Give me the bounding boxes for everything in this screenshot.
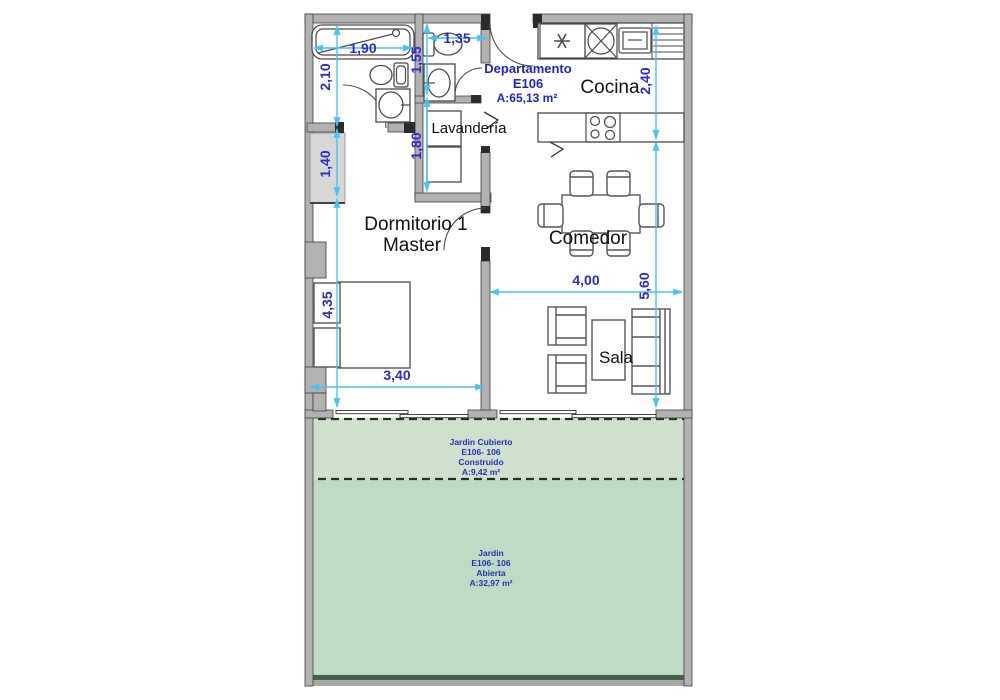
dryer <box>427 147 461 182</box>
unit-name-line1: Departamento <box>484 61 571 76</box>
left-wall-jog-3 <box>313 393 326 411</box>
dim-bath2-height: 1,55 <box>408 46 424 73</box>
sink1-basin <box>379 92 403 118</box>
bedroom-door-leaf <box>481 247 490 261</box>
nightstand-2 <box>314 328 340 367</box>
laundry-door-jamb-bottom <box>481 206 490 213</box>
covered-garden-line1: Jardin Cubierto <box>450 437 513 447</box>
dim-bedroom-width: 3,40 <box>383 367 410 383</box>
open-garden-line3: Abierta <box>476 568 506 578</box>
label-bedroom-line2: Master <box>383 235 442 256</box>
covered-garden-line3: Construido <box>458 457 503 467</box>
laundry-door-jamb-top <box>481 146 490 153</box>
window-sill-3 <box>500 411 576 414</box>
garden-bottom-border <box>305 675 692 680</box>
left-wall <box>305 14 313 686</box>
armchair-2 <box>548 355 586 393</box>
dim-bath1-height: 2,10 <box>317 63 333 90</box>
dining-chair-6 <box>639 204 664 227</box>
window-sill-2 <box>400 415 468 418</box>
label-bedroom-line1: Dormitorio 1 <box>364 214 467 235</box>
floor-plan-svg: 1,90 2,10 1,40 4,35 1,35 1,55 1,80 2,40 … <box>0 0 1000 700</box>
covered-garden-line2: E106- 106 <box>461 447 500 457</box>
open-garden-line2: E106- 106 <box>471 558 510 568</box>
covered-garden-line4: A:9,42 m² <box>462 467 500 477</box>
bottom-wall-stub-middle <box>468 410 497 418</box>
dining-chair-1 <box>570 171 593 196</box>
dining-chair-5 <box>538 204 563 227</box>
right-wall <box>684 14 692 686</box>
unit-area: A:65,13 m² <box>497 91 558 105</box>
laundry-south-wall <box>415 193 491 202</box>
window-sill-1 <box>336 411 408 414</box>
unit-title-block: Departamento E106 A:65,13 m² <box>484 61 571 105</box>
dim-closet-height: 1,40 <box>317 150 333 177</box>
dining-chair-2 <box>607 171 630 196</box>
kitchen-entry-chevron <box>548 141 563 157</box>
left-wall-jog-1 <box>305 242 326 278</box>
unit-name-line2: E106 <box>513 76 543 91</box>
label-living: Sala <box>599 348 634 367</box>
garden-bottom-wall <box>305 680 692 686</box>
bath-laundry-west-wall <box>415 14 423 200</box>
toilet2-tank <box>423 33 434 56</box>
top-wall-right <box>533 14 692 23</box>
dim-laundry-height: 1,80 <box>408 132 424 159</box>
bath1-door-jamb-right <box>404 122 415 133</box>
top-wall-left <box>305 14 490 23</box>
dim-living-width: 4,00 <box>572 272 599 288</box>
bath2-door-jamb <box>471 95 481 103</box>
floor-plan-canvas: 1,90 2,10 1,40 4,35 1,35 1,55 1,80 2,40 … <box>0 0 1000 700</box>
dim-tub-width: 1,90 <box>349 40 376 56</box>
open-garden-line4: A:32,97 m² <box>470 578 513 588</box>
label-laundry: Lavandería <box>431 120 507 137</box>
entry-door-arc <box>490 23 533 66</box>
dim-bath2-width: 1,35 <box>443 30 470 46</box>
open-garden-line1: Jardin <box>478 548 504 558</box>
bath2-door-arc <box>455 68 482 95</box>
hall-divider-wall-b <box>481 152 490 213</box>
dim-living-height: 5,60 <box>636 272 652 299</box>
bottom-wall-stub-right <box>656 410 692 418</box>
window-sill-4 <box>572 415 656 418</box>
dim-bedroom-height: 4,35 <box>319 291 335 318</box>
label-kitchen: Cocina <box>580 77 640 98</box>
toilet1-bowl <box>370 66 392 85</box>
armchair-1 <box>548 307 586 345</box>
bed <box>337 282 410 368</box>
entry-jamb-left <box>481 14 490 30</box>
label-dining: Comedor <box>549 228 628 249</box>
left-wall-jog-2 <box>305 367 326 393</box>
